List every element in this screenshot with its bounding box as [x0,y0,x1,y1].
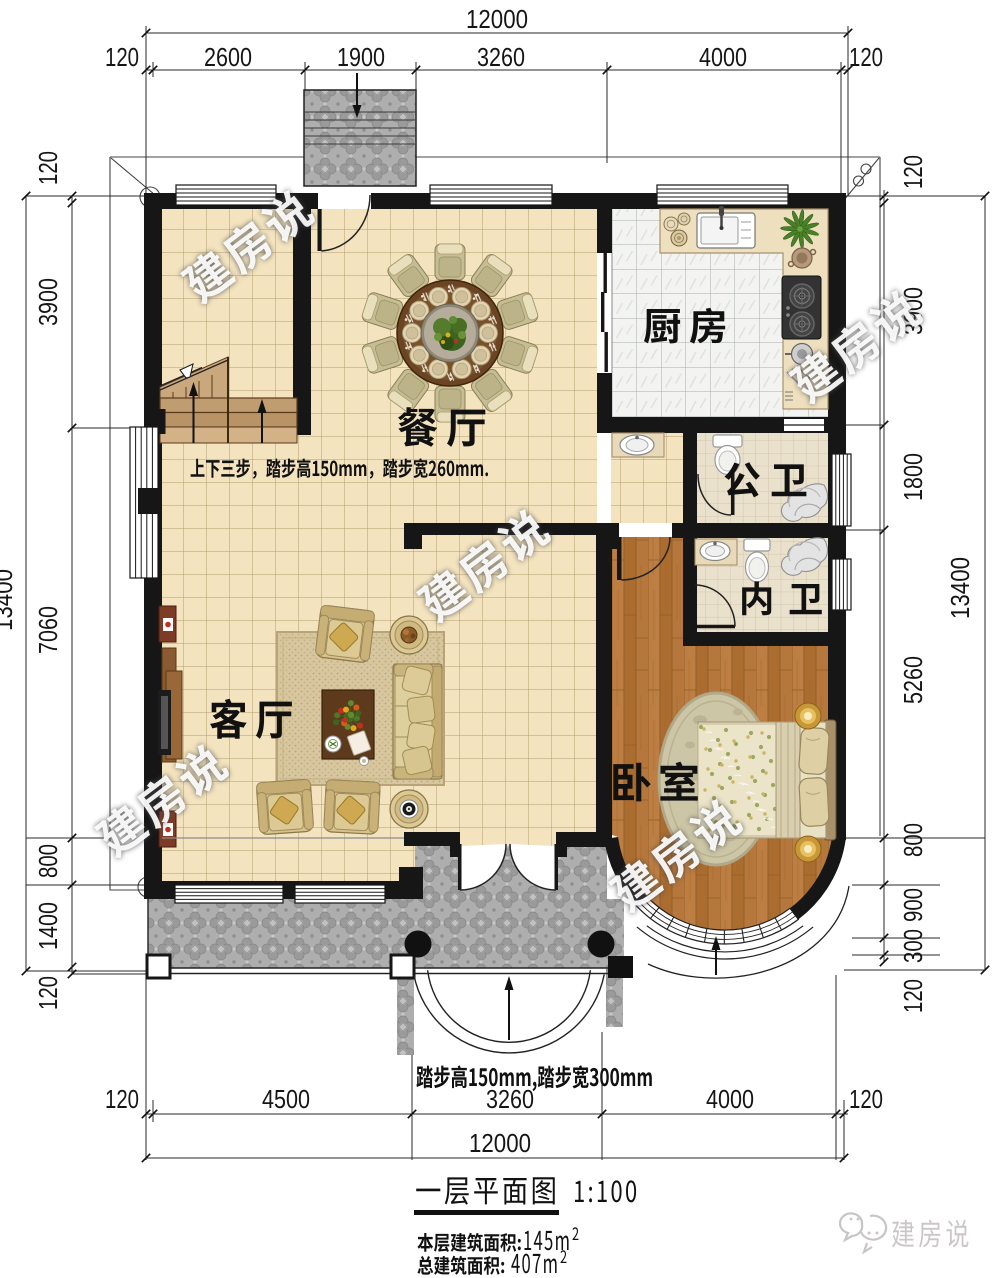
svg-text:1400: 1400 [33,902,63,950]
svg-text:1800: 1800 [898,453,928,501]
svg-text:120: 120 [105,1084,139,1114]
svg-text:120: 120 [849,42,883,72]
svg-text:4500: 4500 [262,1084,310,1114]
svg-text:13400: 13400 [0,569,18,631]
svg-text:800: 800 [898,823,928,857]
svg-text:3260: 3260 [486,1084,534,1114]
svg-text:5260: 5260 [898,656,928,704]
svg-text:12000: 12000 [466,4,528,34]
svg-text:3260: 3260 [477,42,525,72]
svg-text:120: 120 [898,155,928,189]
svg-text:2600: 2600 [204,42,252,72]
svg-text:120: 120 [898,979,928,1013]
svg-text:900: 900 [898,888,928,922]
svg-text:120: 120 [105,42,139,72]
svg-text:12000: 12000 [469,1128,531,1158]
svg-text:1900: 1900 [337,42,385,72]
svg-text:7060: 7060 [33,606,63,654]
svg-text:300: 300 [898,929,928,963]
svg-text:4000: 4000 [706,1084,754,1114]
svg-text:120: 120 [849,1084,883,1114]
svg-text:120: 120 [33,151,63,185]
svg-text:800: 800 [33,844,63,878]
svg-text:3900: 3900 [33,278,63,326]
svg-text:13400: 13400 [945,557,975,619]
svg-text:120: 120 [33,976,63,1010]
svg-text:4000: 4000 [699,42,747,72]
